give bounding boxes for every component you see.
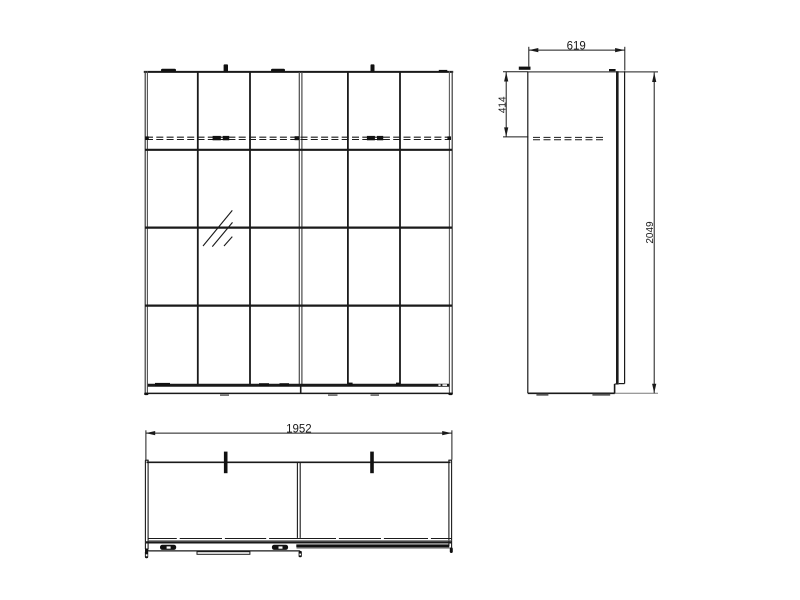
- svg-text:619: 619: [567, 40, 586, 52]
- svg-text:1952: 1952: [286, 424, 312, 436]
- svg-text:414: 414: [497, 96, 508, 113]
- svg-text:2049: 2049: [645, 221, 656, 244]
